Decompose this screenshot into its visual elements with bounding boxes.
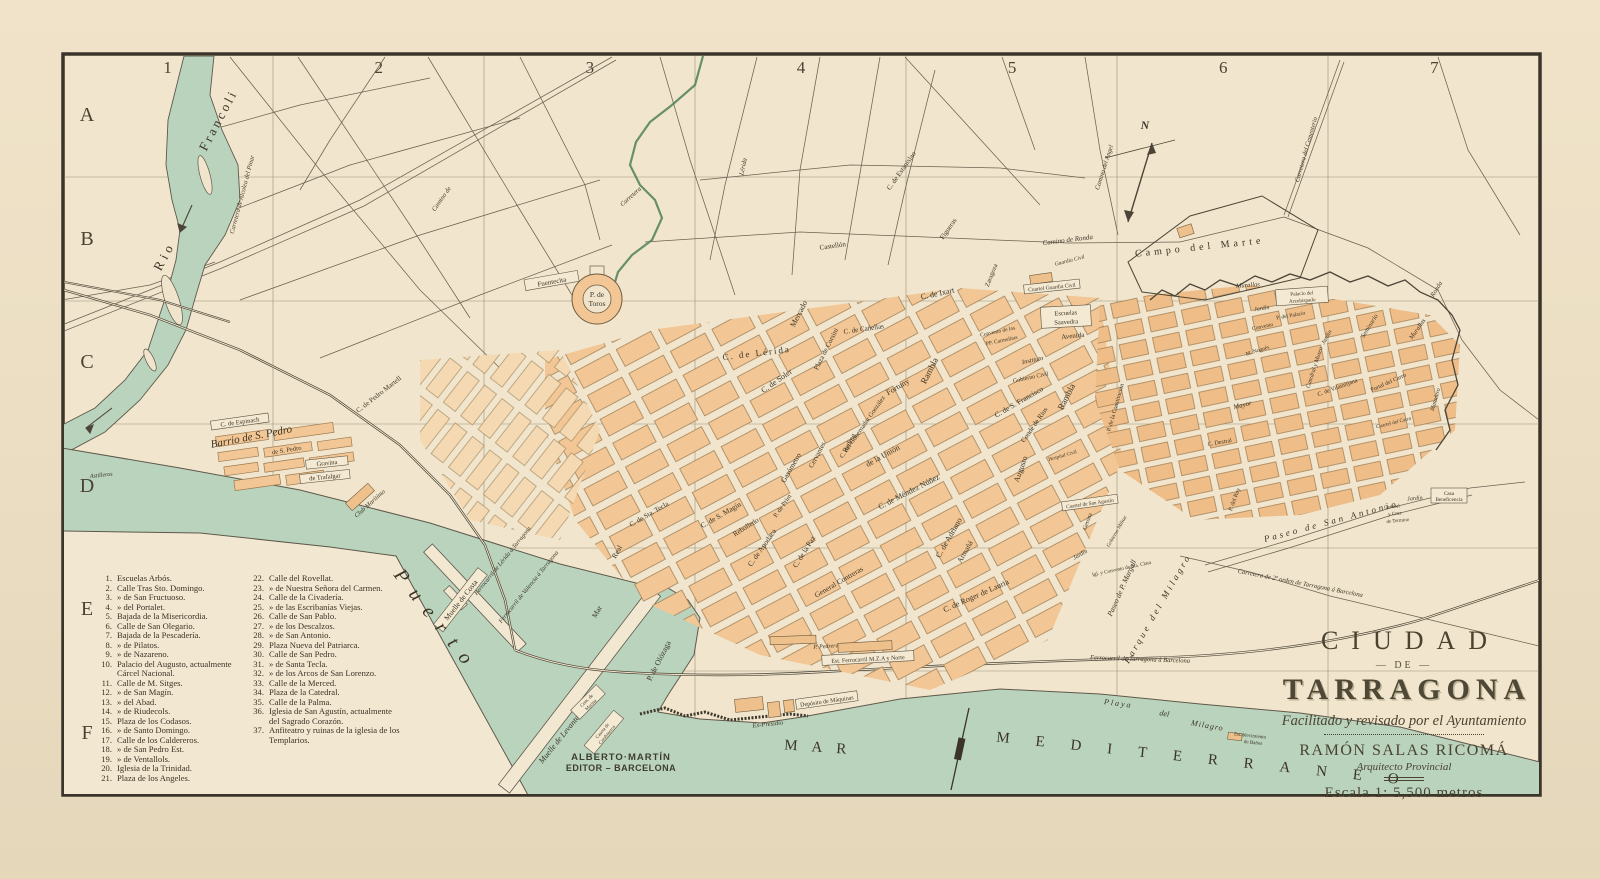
legend-item-text: Palacio del Augusto, actualmente Cárcel … xyxy=(117,660,242,679)
grid-row-label: B xyxy=(72,178,102,302)
grid-column-label: 4 xyxy=(695,58,906,78)
grid-column-label: 6 xyxy=(1118,58,1329,78)
publisher-name: ALBERTO·MARTÍN xyxy=(556,752,686,763)
legend-item: 21. Plaza de los Angeles. xyxy=(94,774,242,784)
grid-column-label: 3 xyxy=(484,58,695,78)
label-plaza-toros-2: Toros xyxy=(589,299,606,308)
legend-item-text: Iglesia de San Agustín, actualmente del … xyxy=(269,707,404,726)
label-plaza-toros-1: P. de xyxy=(590,290,605,299)
title-divider xyxy=(1324,733,1484,735)
publisher-imprint: ALBERTO·MARTÍN EDITOR – BARCELONA xyxy=(556,752,686,773)
title-de: DE xyxy=(1268,660,1540,671)
grid-column-label: 7 xyxy=(1329,58,1540,78)
grid-column-label: 5 xyxy=(907,58,1118,78)
label-escuelas-saavedra: Escuelas Saavedra xyxy=(1040,305,1091,329)
legend-column-2: 22. Calle del Rovellat. 23. » de Nuestra… xyxy=(246,574,404,745)
title-tarragona: TARRAGONA xyxy=(1268,673,1540,707)
grid-column-labels: 1234567 xyxy=(62,58,1540,78)
legend-item-text: Plaza de los Angeles. xyxy=(117,774,242,784)
label-casa-beneficencia: Casa Beneficencia xyxy=(1431,488,1467,503)
legend-item-number: 21. xyxy=(94,774,112,784)
legend-item: 37. Anfiteatro y ruinas de la iglesia de… xyxy=(246,726,404,745)
legend-item-number: 10. xyxy=(94,660,112,679)
title-cartouche: CIUDAD DE TARRAGONA Facilitado y revisad… xyxy=(1268,626,1540,802)
legend-item-number: 36. xyxy=(246,707,264,726)
title-author: RAMÓN SALAS RICOMÁ xyxy=(1268,742,1540,760)
grid-column-label: 2 xyxy=(273,58,484,78)
svg-text:Escuelas: Escuelas xyxy=(1054,309,1078,317)
map-page: N Rio Francoli Carretera de Alcolea del … xyxy=(0,0,1600,879)
legend-item: 36. Iglesia de San Agustín, actualmente … xyxy=(246,707,404,726)
grid-row-label: A xyxy=(72,54,102,178)
title-rule xyxy=(1384,777,1424,781)
title-author-role: Arquitecto Provincial xyxy=(1268,761,1540,773)
compass-north-label: N xyxy=(1140,118,1151,132)
label-palacio-arzobispado: Palacio del Arzobispado xyxy=(1275,286,1328,306)
legend-item: 10. Palacio del Augusto, actualmente Cár… xyxy=(94,660,242,679)
title-subtitle: Facilitado y revisado por el Ayuntamient… xyxy=(1268,713,1540,730)
grid-row-label: C xyxy=(72,301,102,425)
grid-row-label: D xyxy=(72,425,102,549)
publisher-city: EDITOR – BARCELONA xyxy=(556,763,686,773)
legend-column-1: 1. Escuelas Arbós. 2. Calle Tras Sto. Do… xyxy=(94,574,242,783)
svg-text:Saavedra: Saavedra xyxy=(1054,318,1078,326)
title-ciudad: CIUDAD xyxy=(1268,626,1540,656)
legend-item-number: 37. xyxy=(246,726,264,745)
svg-text:Beneficencia: Beneficencia xyxy=(1435,496,1463,503)
legend-item-text: Anfiteatro y ruinas de la iglesia de los… xyxy=(269,726,404,745)
title-scale: Escala 1: 5,500 metros xyxy=(1268,785,1540,802)
